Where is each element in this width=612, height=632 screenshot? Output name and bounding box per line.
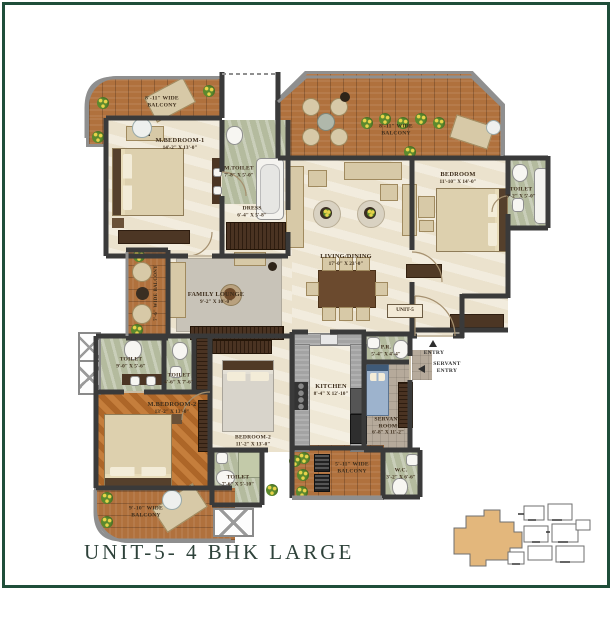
service-shaft bbox=[213, 508, 254, 537]
bed-pillows bbox=[110, 467, 166, 476]
balcony-label-bottom-left: 9'-10" WIDEBALCONY bbox=[129, 505, 163, 518]
vanity-master bbox=[212, 158, 221, 204]
balcony-size: 5'-11" WIDE bbox=[335, 461, 369, 468]
armchair-living-1 bbox=[308, 170, 327, 187]
room-label-toilet-tr: TOILET8'-2" X 5'-0" bbox=[506, 187, 535, 200]
room-name: TOILET bbox=[116, 357, 145, 364]
toilet-fixture-master bbox=[226, 126, 243, 145]
platter-top-left bbox=[132, 118, 152, 138]
plant bbox=[266, 484, 278, 496]
sink-wc bbox=[406, 454, 419, 466]
room-label-family: FAMILY LOUNGE9'-2" X 10'-0" bbox=[188, 291, 245, 305]
balcony-label-left: 7'-6" WIDE BALCONY bbox=[154, 265, 160, 321]
room-dims: 5'-4" X 4'-4" bbox=[371, 351, 400, 357]
plant bbox=[297, 469, 309, 481]
room-label-living: LIVING/DINING17'-0" X 23'-0" bbox=[320, 253, 372, 267]
kitchen-sink bbox=[320, 334, 338, 345]
dining-chair bbox=[339, 307, 353, 321]
plant bbox=[361, 117, 373, 129]
sofa-top bbox=[344, 162, 402, 180]
floor-lamp bbox=[268, 262, 277, 271]
room-name: M.BEDROOM-1 bbox=[156, 137, 205, 145]
duct-floor bbox=[222, 74, 278, 118]
room-label-pr: P.R.5'-4" X 4'-4" bbox=[371, 345, 400, 358]
balcony-word: BALCONY bbox=[379, 130, 413, 137]
balcony-size: 7'-6" WIDE BALCONY bbox=[154, 265, 160, 321]
room-name: TOILET bbox=[222, 475, 254, 482]
sink-master-2 bbox=[213, 186, 222, 195]
room-dims: 8'-2" X 5'-0" bbox=[506, 193, 535, 199]
plant bbox=[133, 250, 145, 262]
room-dims: 7'-8" X 5'-0" bbox=[224, 172, 254, 178]
plan-title: UNIT-5- 4 BHK LARGE bbox=[84, 540, 354, 565]
bed-pillows bbox=[488, 194, 497, 246]
bathtub-tr bbox=[534, 168, 549, 224]
hob bbox=[294, 382, 308, 410]
room-dims: 17'-0" X 23'-0" bbox=[320, 261, 372, 267]
room-dims: 8'-4" X 12'-10" bbox=[314, 391, 349, 397]
bed-bedroom2 bbox=[222, 360, 274, 432]
round-chair-left-balcony bbox=[132, 304, 152, 324]
dining-chair bbox=[306, 282, 319, 296]
round-table bbox=[317, 113, 335, 131]
room-label-mbedroom1: M.BEDROOM-114'-2" X 13'-0" bbox=[156, 137, 205, 151]
dining-chair bbox=[356, 307, 370, 321]
wardrobe-bedroom2 bbox=[212, 340, 272, 354]
cabinet-family bbox=[234, 252, 266, 266]
side-table-dark bbox=[340, 92, 350, 102]
room-label-dress: DRESS6'-4" X 5'-8" bbox=[237, 206, 266, 219]
bed-pillows bbox=[227, 372, 269, 381]
room-dims: 9'-0" X 5'-6" bbox=[116, 363, 145, 369]
sink-tr bbox=[512, 198, 524, 212]
sink-master-1 bbox=[213, 168, 222, 177]
balcony-label-bottom: 5'-11" WIDEBALCONY bbox=[335, 461, 369, 474]
room-dims: 9'-2" X 10'-0" bbox=[188, 299, 245, 305]
room-label-mtoilet: M.TOILET7'-8" X 5'-0" bbox=[224, 166, 254, 179]
plant bbox=[101, 516, 113, 528]
room-dims: 11'-2" X 13'-0" bbox=[235, 441, 271, 447]
balcony-word: BALCONY bbox=[335, 468, 369, 475]
planter-box bbox=[314, 474, 330, 492]
room-dims: 14'-2" X 13'-0" bbox=[156, 145, 205, 151]
planter-box bbox=[314, 454, 330, 472]
bed-pillows bbox=[123, 154, 132, 210]
room-label-bedroom2: BEDROOM-211'-2" X 13'-0" bbox=[235, 435, 271, 448]
room-label-toilet-sm: TOILET4'-6" X 7'-6" bbox=[164, 373, 193, 386]
balcony-size: 8'-11" WIDE bbox=[379, 123, 413, 130]
plant bbox=[101, 492, 113, 504]
side-table-tr bbox=[486, 120, 501, 135]
plant bbox=[203, 85, 215, 97]
plant bbox=[367, 209, 375, 217]
balcony-size: 9'-10" WIDE bbox=[129, 505, 163, 512]
room-name: TOILET bbox=[164, 373, 193, 380]
room-name: BEDROOM-2 bbox=[235, 435, 271, 442]
wardrobe-tall bbox=[196, 338, 211, 394]
armchair-living-2 bbox=[380, 184, 398, 201]
platter-bottom-left bbox=[162, 490, 182, 510]
plant bbox=[296, 486, 308, 498]
dresser-bedroom bbox=[450, 314, 504, 328]
plant bbox=[433, 117, 445, 129]
nightstand bbox=[172, 414, 182, 424]
round-chair bbox=[330, 128, 348, 146]
plant bbox=[415, 113, 427, 125]
entry-label: ENTRY bbox=[424, 350, 445, 356]
unit-badge: UNIT-5 bbox=[387, 304, 423, 318]
room-name: M.BEDROOM-2 bbox=[148, 401, 197, 409]
console-table bbox=[406, 264, 442, 278]
room-dims: 4'-6" X 7'-6" bbox=[164, 379, 193, 385]
plant bbox=[97, 97, 109, 109]
bed-bedroom bbox=[436, 188, 508, 252]
room-name: TOILET bbox=[506, 187, 535, 194]
sofa-family bbox=[168, 262, 186, 318]
round-chair bbox=[302, 128, 320, 146]
toilet-fixture-wc bbox=[392, 478, 408, 497]
balcony-word: BALCONY bbox=[129, 512, 163, 519]
bed-mbedroom2 bbox=[104, 414, 172, 488]
room-dims: 3'-2" X 6'-6" bbox=[386, 474, 415, 480]
round-chair bbox=[302, 98, 320, 116]
room-label-kitchen: KITCHEN8'-4" X 12'-10" bbox=[314, 383, 349, 397]
vanity-ml bbox=[122, 374, 166, 385]
room-label-toilet-b: TOILET7'-6" X 5'-10" bbox=[222, 475, 254, 488]
sink-ml-1 bbox=[130, 376, 140, 386]
servant-entry-arrow-icon bbox=[418, 365, 425, 373]
dining-chair bbox=[322, 307, 336, 321]
balcony-word: BALCONY bbox=[145, 102, 179, 109]
wardrobe-dress bbox=[226, 222, 286, 250]
plant bbox=[404, 146, 416, 158]
floor-plan-page: { "title": "UNIT-5- 4 BHK LARGE", "unit_… bbox=[0, 0, 612, 632]
entry-arrow-icon bbox=[429, 340, 437, 347]
fridge bbox=[350, 414, 367, 444]
plant bbox=[289, 455, 301, 467]
servant-entry-label-1: SERVANT bbox=[433, 361, 460, 367]
room-dims: 13'-2" X 13'-0" bbox=[148, 409, 197, 415]
servant-bed bbox=[366, 364, 389, 416]
room-name: KITCHEN bbox=[314, 383, 349, 391]
room-dims: 6'-4" X 5'-8" bbox=[237, 212, 266, 218]
room-label-toilet-ml: TOILET9'-0" X 5'-6" bbox=[116, 357, 145, 370]
dining-chair bbox=[375, 282, 388, 296]
round-chair-left-balcony bbox=[132, 262, 152, 282]
balcony-size: 8'-11" WIDE bbox=[145, 95, 179, 102]
chaise bbox=[402, 184, 417, 236]
room-name: DRESS bbox=[237, 206, 266, 213]
room-name: P.R. bbox=[371, 345, 400, 352]
nightstand bbox=[112, 218, 124, 228]
round-table-left-balcony bbox=[136, 287, 149, 300]
key-plan-units bbox=[454, 504, 590, 566]
servant-entry-label-2: ENTRY bbox=[437, 368, 458, 374]
room-dims: 11'-10" X 14'-0" bbox=[439, 179, 476, 185]
room-label-wc: W.C.3'-2" X 6'-6" bbox=[386, 468, 415, 481]
plant bbox=[92, 131, 104, 143]
room-name: LIVING/DINING bbox=[320, 253, 372, 261]
oven bbox=[350, 388, 367, 414]
dresser bbox=[118, 230, 190, 244]
toilet-fixture-sm bbox=[172, 342, 188, 360]
room-name: M.TOILET bbox=[224, 166, 254, 173]
lift-shaft bbox=[78, 360, 101, 395]
armchair bbox=[418, 196, 435, 218]
key-plan bbox=[448, 498, 598, 576]
dresser-tall bbox=[198, 400, 211, 452]
plant bbox=[131, 324, 143, 336]
lift-shaft bbox=[78, 332, 101, 363]
bed-pillow bbox=[370, 373, 385, 381]
plant bbox=[323, 209, 331, 217]
room-label-mbedroom2: M.BEDROOM-213'-2" X 13'-0" bbox=[148, 401, 197, 415]
room-dims: 6'-8" X 11'-2" bbox=[367, 429, 409, 435]
balcony-label-top-right: 8'-11" WIDEBALCONY bbox=[379, 123, 413, 136]
room-label-servant: SERVANT ROOM6'-8" X 11'-2" bbox=[367, 416, 409, 435]
toilet-fixture-tr bbox=[512, 164, 528, 182]
balcony-label-top-left: 8'-11" WIDEBALCONY bbox=[145, 95, 179, 108]
room-name: SERVANT ROOM bbox=[367, 416, 409, 429]
room-name: FAMILY LOUNGE bbox=[188, 291, 245, 299]
room-dims: 7'-6" X 5'-10" bbox=[222, 481, 254, 487]
sink-ml-2 bbox=[146, 376, 156, 386]
room-label-bedroom: BEDROOM11'-10" X 14'-0" bbox=[439, 171, 476, 185]
dining-table bbox=[318, 270, 376, 308]
sofa-vertical bbox=[286, 166, 304, 248]
room-name: W.C. bbox=[386, 468, 415, 475]
ottoman bbox=[419, 220, 434, 232]
room-name: BEDROOM bbox=[439, 171, 476, 179]
sink-b bbox=[216, 452, 228, 464]
bed-mbedroom1 bbox=[112, 148, 184, 216]
